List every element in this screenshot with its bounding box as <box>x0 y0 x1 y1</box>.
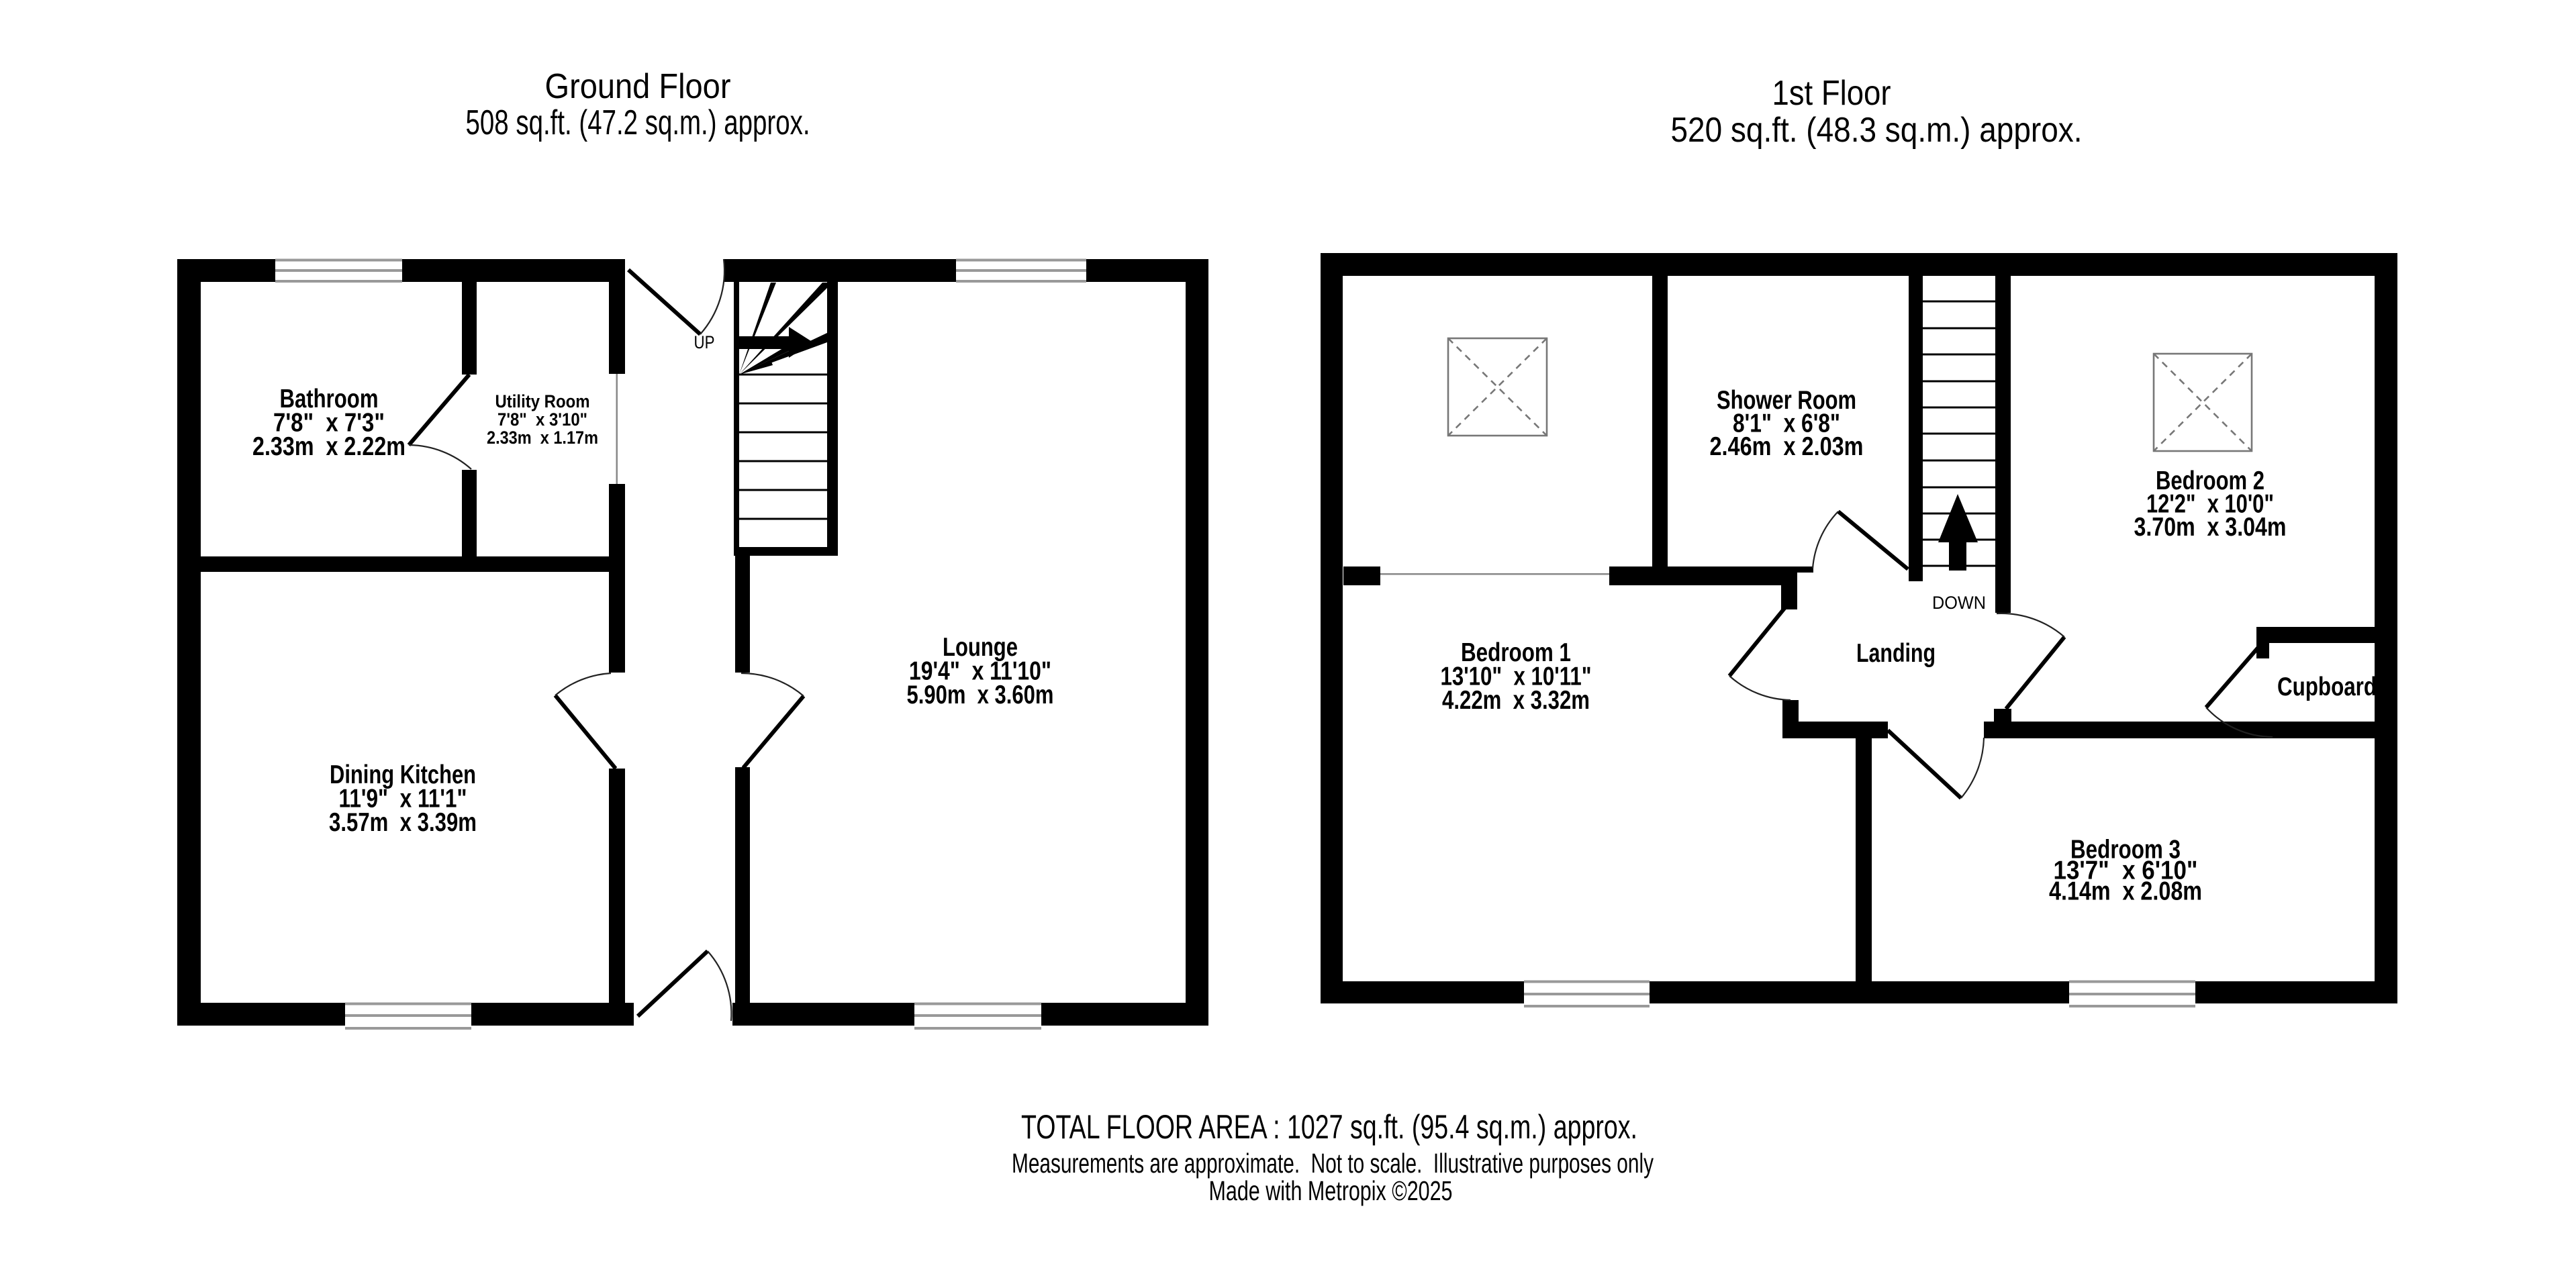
svg-text:DOWN: DOWN <box>1932 593 1986 613</box>
svg-text:5.90m x 3.60m: 5.90m x 3.60m <box>907 681 1054 709</box>
svg-text:4.14m x 2.08m: 4.14m x 2.08m <box>2049 877 2202 906</box>
svg-text:Landing: Landing <box>1856 639 1936 668</box>
svg-text:2.33m x 1.17m: 2.33m x 1.17m <box>487 428 598 448</box>
svg-text:Cupboard: Cupboard <box>2277 673 2377 701</box>
svg-text:4.22m x 3.32m: 4.22m x 3.32m <box>1442 686 1590 715</box>
svg-text:508 sq.ft. (47.2 sq.m.) approx: 508 sq.ft. (47.2 sq.m.) approx. <box>466 103 810 142</box>
svg-text:Utility Room: Utility Room <box>495 391 590 411</box>
svg-text:TOTAL FLOOR AREA : 1027 sq.ft.: TOTAL FLOOR AREA : 1027 sq.ft. (95.4 sq.… <box>1021 1108 1637 1146</box>
svg-text:Measurements are approximate.: Measurements are approximate. Not to sca… <box>1012 1148 1654 1179</box>
svg-text:UP: UP <box>694 332 715 352</box>
svg-text:7'8" x 3'10": 7'8" x 3'10" <box>497 409 587 430</box>
svg-text:Made with Metropix ©2025: Made with Metropix ©2025 <box>1209 1175 1453 1206</box>
svg-text:3.70m x 3.04m: 3.70m x 3.04m <box>2134 513 2287 542</box>
svg-text:2.33m x 2.22m: 2.33m x 2.22m <box>252 432 406 461</box>
svg-text:1st Floor: 1st Floor <box>1772 74 1891 113</box>
svg-text:Ground Floor: Ground Floor <box>545 67 731 106</box>
svg-text:3.57m x 3.39m: 3.57m x 3.39m <box>329 808 477 837</box>
svg-text:2.46m x 2.03m: 2.46m x 2.03m <box>1710 432 1864 461</box>
svg-text:520 sq.ft. (48.3 sq.m.) approx: 520 sq.ft. (48.3 sq.m.) approx. <box>1671 111 2083 150</box>
